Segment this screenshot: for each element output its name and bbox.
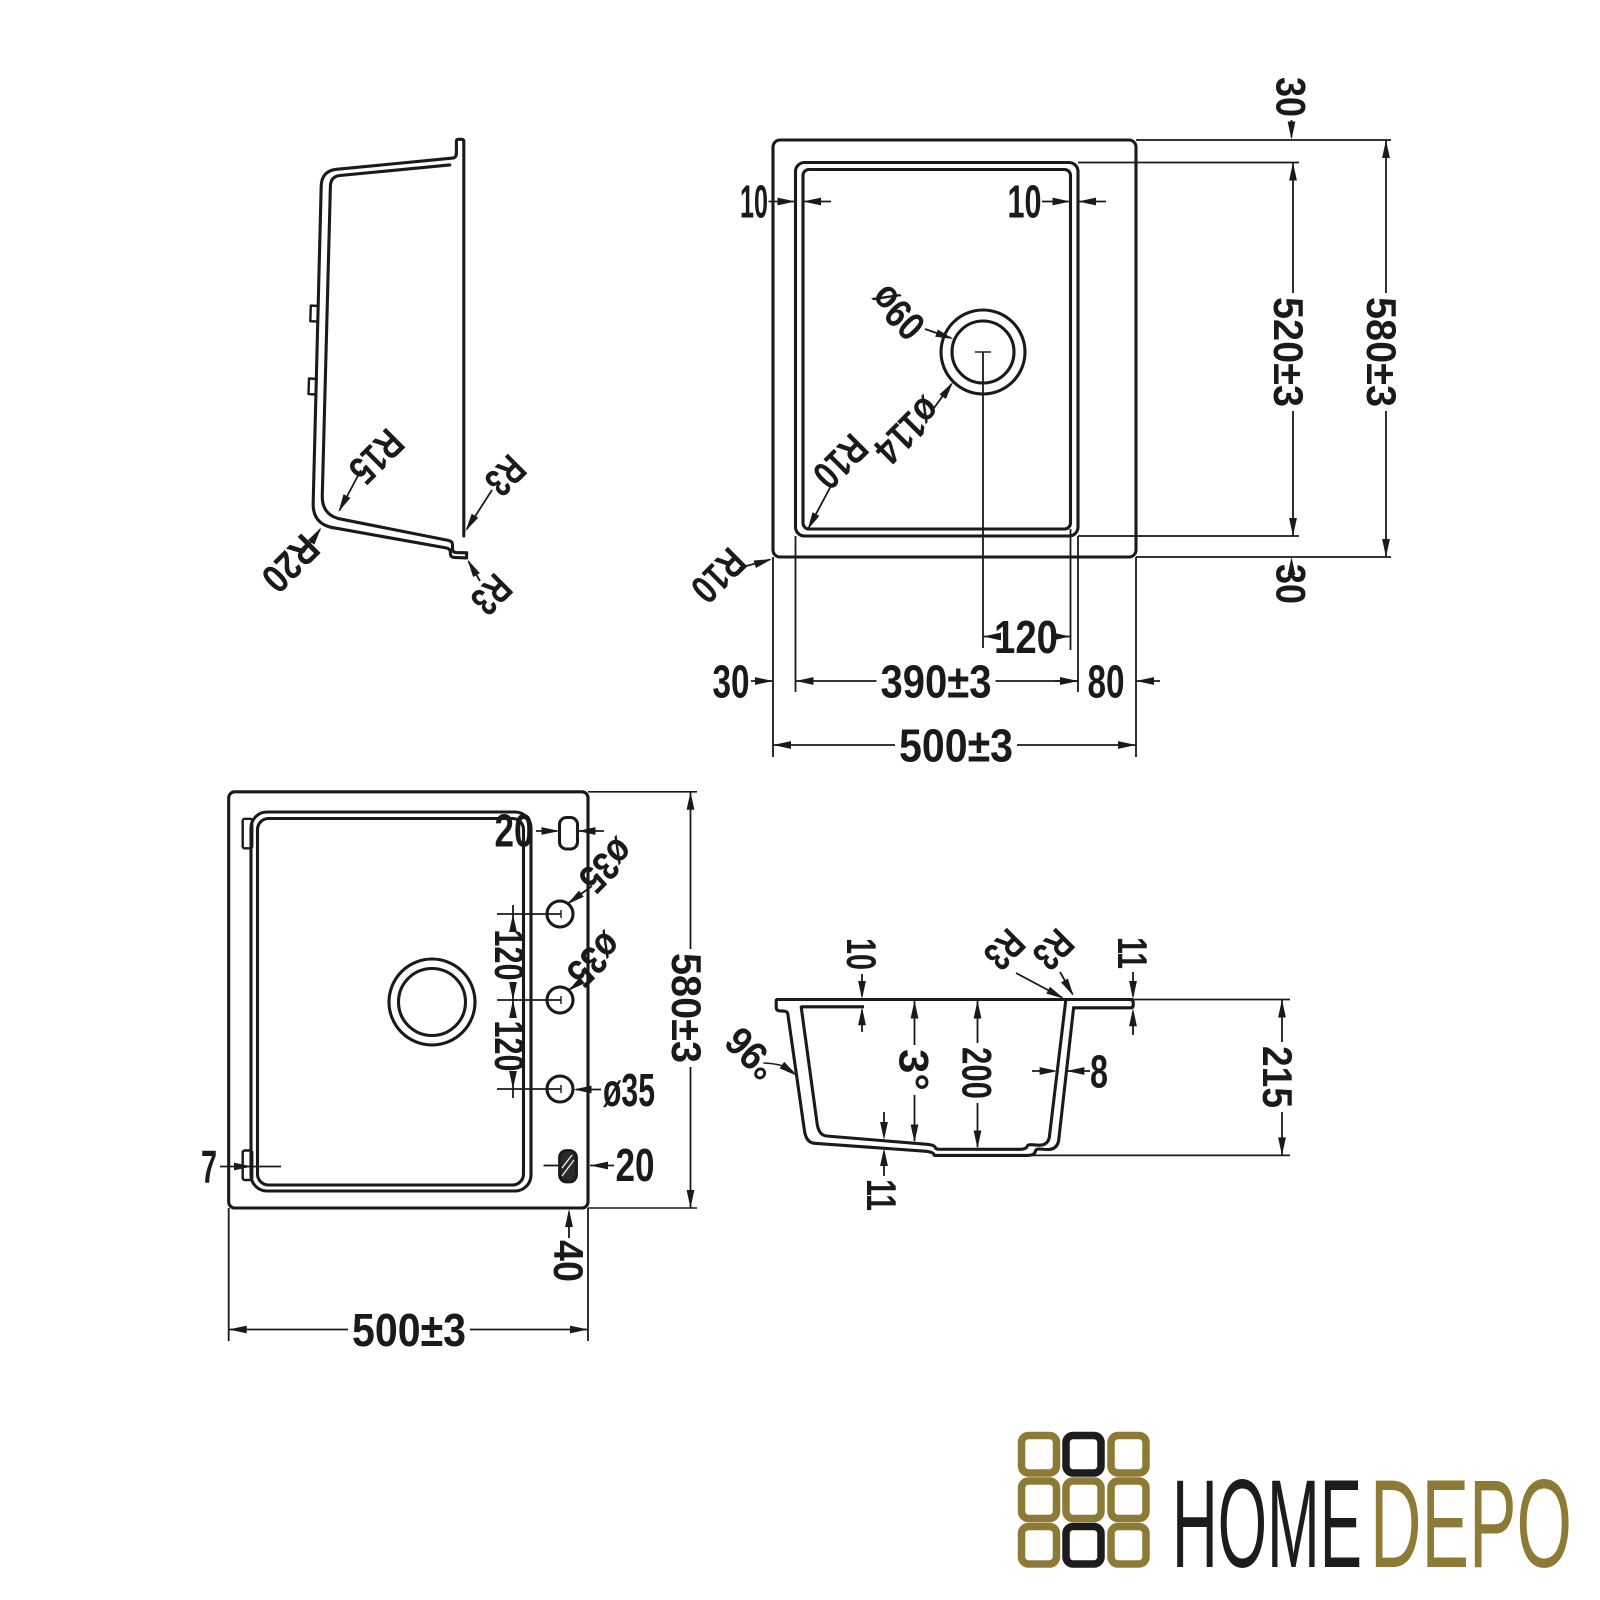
svg-text:HOME: HOME xyxy=(1172,1455,1362,1594)
svg-text:10: 10 xyxy=(740,176,768,228)
svg-text:8: 8 xyxy=(1090,1046,1108,1098)
svg-text:ø35: ø35 xyxy=(603,1064,655,1116)
svg-text:80: 80 xyxy=(1088,656,1125,708)
svg-text:20: 20 xyxy=(616,1139,655,1191)
svg-text:30: 30 xyxy=(1267,77,1314,117)
svg-text:500±3: 500±3 xyxy=(352,1304,466,1356)
svg-text:120: 120 xyxy=(486,930,533,981)
svg-text:215: 215 xyxy=(1254,1046,1301,1108)
svg-text:20: 20 xyxy=(495,805,534,857)
svg-text:580±3: 580±3 xyxy=(1358,297,1405,407)
svg-text:11: 11 xyxy=(858,1179,905,1211)
svg-text:7: 7 xyxy=(201,1141,217,1193)
svg-text:200: 200 xyxy=(953,1047,1000,1099)
svg-text:30: 30 xyxy=(713,656,750,708)
svg-text:40: 40 xyxy=(545,1240,592,1282)
svg-text:580±3: 580±3 xyxy=(663,953,710,1063)
svg-text:390±3: 390±3 xyxy=(881,656,992,708)
svg-text:500±3: 500±3 xyxy=(899,720,1013,772)
svg-text:120: 120 xyxy=(994,611,1058,663)
svg-text:520±3: 520±3 xyxy=(1265,297,1312,407)
svg-text:11: 11 xyxy=(1109,937,1156,969)
svg-text:10: 10 xyxy=(838,938,885,970)
svg-text:3°: 3° xyxy=(890,1049,937,1091)
svg-text:120: 120 xyxy=(486,1021,533,1072)
svg-text:10: 10 xyxy=(1008,176,1042,228)
svg-text:DEPO: DEPO xyxy=(1370,1455,1572,1594)
